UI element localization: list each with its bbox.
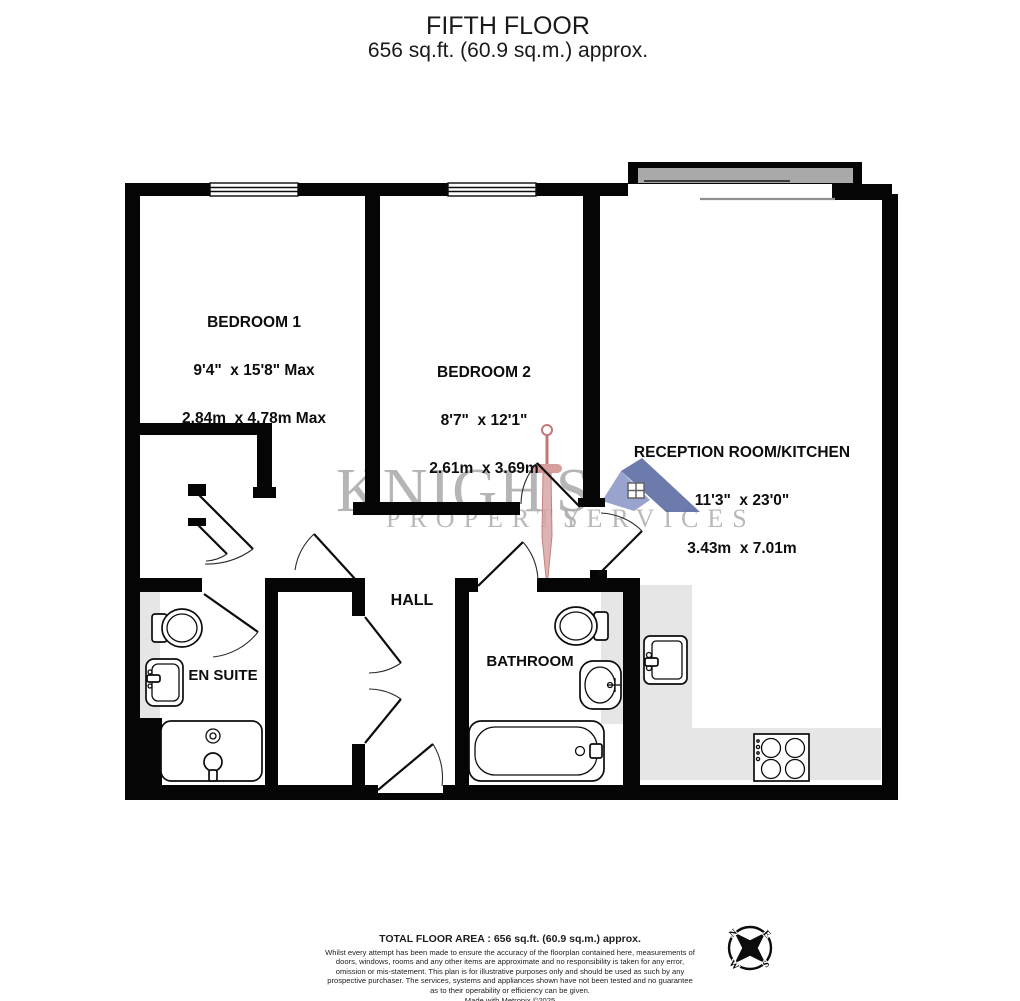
total-floor-area: TOTAL FLOOR AREA : 656 sq.ft. (60.9 sq.m…	[300, 933, 720, 945]
bedroom1-name: BEDROOM 1	[182, 315, 326, 331]
label-bathroom: BATHROOM	[486, 653, 573, 670]
reception-dim-metric: 3.43m x 7.01m	[634, 541, 850, 557]
room-labels: BEDROOM 1 9'4" x 15'8" Max 2.84m x 4.78m…	[0, 0, 1020, 1001]
metropix-credit: Made with Metropix ©2025	[300, 996, 720, 1001]
bedroom2-name: BEDROOM 2	[429, 365, 538, 381]
disclaimer-text: Whilst every attempt has been made to en…	[324, 948, 696, 995]
label-ensuite: EN SUITE	[188, 667, 257, 684]
bedroom2-dim-metric: 2.61m x 3.69m	[429, 461, 538, 477]
floorplan-page: FIFTH FLOOR 656 sq.ft. (60.9 sq.m.) appr…	[0, 0, 1020, 1001]
footer: TOTAL FLOOR AREA : 656 sq.ft. (60.9 sq.m…	[300, 933, 720, 1001]
bedroom1-dim-imperial: 9'4" x 15'8" Max	[182, 363, 326, 379]
bedroom2-dim-imperial: 8'7" x 12'1"	[429, 413, 538, 429]
label-bedroom2: BEDROOM 2 8'7" x 12'1" 2.61m x 3.69m	[429, 333, 538, 509]
bedroom1-dim-metric: 2.84m x 4.78m Max	[182, 411, 326, 427]
label-reception: RECEPTION ROOM/KITCHEN 11'3" x 23'0" 3.4…	[634, 413, 850, 589]
label-hall: HALL	[391, 593, 434, 609]
label-bedroom1: BEDROOM 1 9'4" x 15'8" Max 2.84m x 4.78m…	[182, 283, 326, 459]
reception-dim-imperial: 11'3" x 23'0"	[634, 493, 850, 509]
reception-name: RECEPTION ROOM/KITCHEN	[634, 445, 850, 461]
